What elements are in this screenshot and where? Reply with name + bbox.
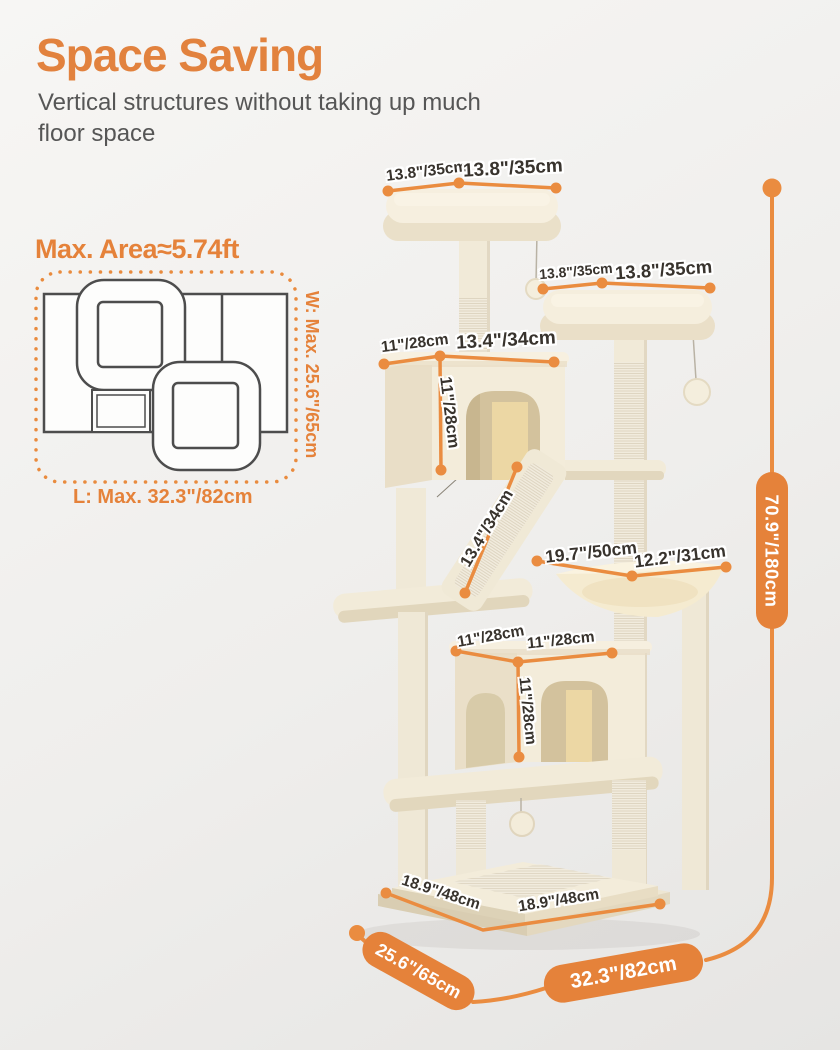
page-title: Space Saving	[36, 28, 323, 82]
left-lower-post	[398, 612, 428, 890]
far-right-post	[682, 565, 709, 890]
top-perch	[383, 189, 561, 241]
overall-height-value: 70.9"/180cm	[761, 494, 783, 607]
left-upper-post	[396, 488, 426, 592]
floorplan-title: Max. Area≈5.74ft	[35, 234, 239, 265]
floorplan-length-label: L: Max. 32.3"/82cm	[73, 486, 253, 509]
page-subtitle: Vertical structures without taking up mu…	[38, 88, 528, 149]
overall-height-pill: 70.9"/180cm	[756, 472, 788, 629]
floorplan-footprint	[44, 280, 287, 470]
lower-condo-side-doorway	[466, 693, 505, 768]
right-perch	[540, 290, 715, 340]
floorplan-width-label: W: Max. 25.6"/65cm	[301, 291, 322, 458]
pompom-ball	[684, 379, 710, 405]
cat-tree-illustration	[332, 189, 724, 950]
pompom-ball	[510, 812, 534, 836]
mid-platform	[332, 577, 534, 623]
floorplan-diagram	[36, 272, 296, 482]
